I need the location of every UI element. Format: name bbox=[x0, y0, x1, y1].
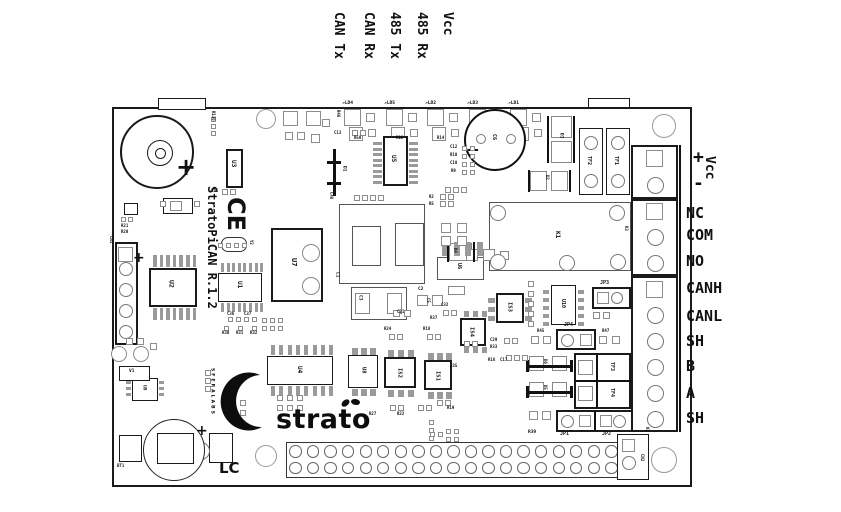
gpio-pin bbox=[360, 462, 372, 474]
ic-pin bbox=[388, 350, 394, 357]
pad-hole bbox=[133, 346, 149, 362]
ic-pin bbox=[153, 308, 157, 320]
smd-pad bbox=[118, 247, 133, 262]
pad-hole bbox=[584, 174, 598, 188]
mounting-hole bbox=[255, 445, 277, 467]
led-label-LD1: ↗LD1 bbox=[508, 102, 519, 107]
ic-pin bbox=[313, 386, 317, 396]
component-body bbox=[395, 223, 424, 266]
refdes-U6: U6 bbox=[456, 263, 461, 269]
terminal-label-5-CANH: CANH bbox=[686, 281, 722, 296]
ic-pin bbox=[321, 386, 325, 396]
silk-line bbox=[327, 182, 341, 185]
smd-pad bbox=[390, 405, 396, 411]
cn1-pin bbox=[119, 304, 133, 318]
refdes-U8: U8 bbox=[360, 367, 366, 374]
silk-line bbox=[526, 360, 529, 372]
led-label-LD2: ↗LD2 bbox=[425, 102, 436, 107]
ic-pin bbox=[388, 390, 394, 397]
smd-pad bbox=[262, 326, 267, 331]
smd-pad bbox=[457, 236, 467, 246]
component-body bbox=[529, 356, 544, 371]
smd-pad bbox=[262, 318, 267, 323]
ic-pin bbox=[255, 303, 258, 312]
gpio-pin bbox=[465, 445, 477, 457]
smd-pad bbox=[441, 223, 451, 233]
smd-pad bbox=[236, 317, 241, 322]
silk-line bbox=[527, 391, 573, 394]
refdes-C5: C5 bbox=[426, 298, 430, 303]
smd-pad bbox=[126, 338, 133, 345]
refdes-JP2: JP2 bbox=[602, 432, 611, 437]
relay-pin bbox=[609, 205, 625, 221]
smd-pad bbox=[454, 429, 459, 434]
smd-pad bbox=[580, 334, 592, 346]
board-name: StratoPiCAN R.1.2 bbox=[206, 186, 218, 309]
smd-pad bbox=[311, 134, 320, 143]
smd-pad bbox=[449, 113, 458, 122]
smd-pad bbox=[462, 146, 467, 151]
ic-pin bbox=[543, 306, 549, 310]
ic-pin bbox=[373, 170, 382, 173]
gpio-pin bbox=[412, 462, 424, 474]
ic-pin bbox=[477, 242, 483, 256]
refdes-BT1: BT1 bbox=[117, 464, 124, 468]
smd-pad bbox=[534, 129, 542, 137]
refdes-V1: V1 bbox=[129, 370, 134, 375]
gpio-pin bbox=[517, 445, 529, 457]
top-label-Vcc: Vcc bbox=[441, 12, 454, 35]
ic-pin bbox=[361, 389, 367, 396]
terminal-pin bbox=[647, 385, 664, 402]
led-label-LD5: ↗LD5 bbox=[384, 102, 395, 107]
smd-pad bbox=[322, 119, 330, 127]
pad-hole bbox=[561, 415, 574, 428]
refdes-IS3: IS3 bbox=[506, 302, 512, 312]
refdes-U9: U9 bbox=[141, 385, 146, 390]
ic-pin bbox=[153, 255, 157, 267]
ic-pin bbox=[482, 311, 487, 317]
refdes-C2: C2 bbox=[418, 288, 423, 293]
terminal-pin bbox=[647, 307, 664, 324]
silk-line bbox=[569, 170, 571, 192]
ic-pin bbox=[370, 389, 376, 396]
smd-pad bbox=[211, 124, 216, 129]
smd-pad bbox=[430, 432, 435, 437]
battery-plus: + bbox=[196, 424, 208, 438]
brand-text: SFERALABS bbox=[209, 368, 214, 416]
gpio-pin bbox=[412, 445, 424, 457]
terminal-label-7-SH: SH bbox=[686, 334, 704, 349]
ic-pin bbox=[179, 308, 183, 320]
silk-line bbox=[570, 386, 573, 398]
refdes-U4: U4 bbox=[296, 366, 302, 373]
cn1-plus: + bbox=[133, 251, 145, 265]
refdes-U5: U5 bbox=[390, 155, 396, 162]
ic-pin bbox=[166, 255, 170, 267]
smd-pad bbox=[418, 405, 424, 411]
gpio-pin bbox=[482, 445, 494, 457]
relay-pin bbox=[559, 255, 575, 271]
gpio-pin bbox=[605, 445, 617, 457]
refdes-C32: C32 bbox=[441, 303, 448, 307]
component-body bbox=[226, 149, 243, 188]
ic-pin bbox=[578, 290, 584, 294]
component-body bbox=[352, 226, 381, 266]
relay-pin bbox=[490, 205, 506, 221]
refdes-D2: D2 bbox=[545, 175, 549, 180]
smd-pad bbox=[612, 336, 620, 344]
refdes-C13: C13 bbox=[334, 131, 341, 135]
smd-pad bbox=[270, 326, 275, 331]
ic-pin bbox=[408, 350, 414, 357]
smd-pad bbox=[370, 195, 376, 201]
refdes-L1: L1 bbox=[334, 272, 339, 277]
silkscreen-label-R50: R50 bbox=[354, 136, 361, 140]
gpio-pin bbox=[553, 462, 565, 474]
smd-pad bbox=[457, 223, 467, 233]
ic-pin bbox=[482, 347, 487, 353]
led-label-LD3: ↗LD3 bbox=[467, 102, 478, 107]
ic-pin bbox=[160, 255, 164, 267]
pad-hole bbox=[611, 174, 625, 188]
smd-pad bbox=[451, 129, 459, 137]
ic-pin bbox=[409, 153, 418, 156]
refdes-D5: D5 bbox=[543, 385, 547, 390]
pad-hole bbox=[476, 134, 486, 144]
smd-pad bbox=[542, 411, 551, 420]
smd-pad bbox=[278, 318, 283, 323]
ic-pin bbox=[249, 263, 252, 272]
refdes-R30: R30 bbox=[222, 331, 229, 335]
ic-pin bbox=[409, 181, 418, 184]
ic-pin bbox=[126, 387, 131, 390]
led-pad bbox=[427, 109, 444, 126]
refdes-R20: R20 bbox=[121, 230, 128, 234]
ic-pin bbox=[255, 263, 258, 272]
pad-hole bbox=[302, 277, 320, 295]
gpio-pin bbox=[482, 462, 494, 474]
smd-pad bbox=[234, 243, 239, 248]
terminal-pin bbox=[647, 333, 664, 350]
terminal-pin bbox=[647, 177, 664, 194]
smd-pad bbox=[461, 187, 467, 193]
silk-line bbox=[594, 411, 596, 431]
ic-pin bbox=[543, 322, 549, 326]
silk-line bbox=[333, 149, 336, 196]
ic-pin bbox=[370, 348, 376, 355]
gpio-pin bbox=[360, 445, 372, 457]
ic-pin bbox=[271, 345, 275, 355]
smd-pad bbox=[512, 338, 518, 344]
terminal-pin-square bbox=[646, 150, 663, 167]
smd-pad bbox=[528, 301, 534, 307]
gpio-header bbox=[286, 442, 639, 478]
ic-pin bbox=[437, 353, 443, 360]
refdes-D4: D4 bbox=[453, 248, 457, 253]
smd-pad bbox=[531, 336, 539, 344]
pad-hole bbox=[622, 456, 636, 470]
smd-pad bbox=[228, 317, 233, 322]
refdes-R33: R33 bbox=[490, 345, 497, 349]
smd-pad bbox=[470, 154, 475, 159]
smd-pad bbox=[368, 129, 376, 137]
refdes-U10: U10 bbox=[560, 299, 565, 308]
refdes-R32: R32 bbox=[250, 331, 257, 335]
top-label-CAN-Tx: CAN Tx bbox=[332, 12, 345, 59]
refdes-R24: R24 bbox=[384, 327, 391, 331]
smd-pad bbox=[160, 201, 166, 207]
refdes-D6: D6 bbox=[543, 359, 547, 364]
gpio-pin bbox=[430, 445, 442, 457]
pad-hole bbox=[302, 244, 320, 262]
smd-pad bbox=[426, 405, 432, 411]
mounting-hole bbox=[256, 109, 276, 129]
smd-pad bbox=[366, 113, 375, 122]
silk-line bbox=[570, 360, 573, 372]
component-body bbox=[119, 366, 150, 381]
refdes-R9: R9 bbox=[451, 169, 456, 173]
ic-pin bbox=[398, 390, 404, 397]
ic-pin bbox=[243, 263, 246, 272]
refdes-C10: C10 bbox=[450, 161, 457, 165]
refdes-TF4: TF4 bbox=[609, 388, 614, 397]
ic-pin bbox=[409, 164, 418, 167]
smd-pad bbox=[287, 395, 293, 401]
ic-pin bbox=[160, 308, 164, 320]
smd-pad bbox=[529, 411, 538, 420]
battery-code: LC bbox=[219, 461, 240, 476]
ic-pin bbox=[232, 263, 235, 272]
ic-pin bbox=[313, 345, 317, 355]
ic-pin bbox=[409, 175, 418, 178]
ic-pin bbox=[578, 314, 584, 318]
smd-pad bbox=[446, 429, 451, 434]
refdes-JP1: JP1 bbox=[560, 432, 569, 437]
component-body bbox=[578, 360, 593, 375]
smd-pad bbox=[543, 336, 551, 344]
smd-pad bbox=[277, 395, 283, 401]
component-body bbox=[578, 386, 593, 401]
terminal-label-3-COM: COM bbox=[686, 228, 713, 243]
refdes-R22: R22 bbox=[397, 412, 404, 416]
cn1-pin bbox=[119, 262, 133, 276]
silk-line bbox=[573, 116, 575, 163]
smd-pad bbox=[230, 189, 236, 195]
ic-pin bbox=[260, 303, 263, 312]
pad-hole bbox=[613, 415, 626, 428]
ic-pin bbox=[126, 393, 131, 396]
refdes-D1: D1 bbox=[341, 166, 346, 171]
ic-pin bbox=[398, 350, 404, 357]
smd-pad bbox=[532, 113, 541, 122]
smd-pad bbox=[404, 310, 411, 317]
logo-wordmark: strato bbox=[276, 406, 371, 433]
terminal-label-10-SH: SH bbox=[686, 411, 704, 426]
smd-pad bbox=[448, 201, 454, 207]
refdes-R16: R16 bbox=[488, 358, 495, 362]
ic-pin bbox=[488, 316, 495, 321]
silk-line bbox=[679, 145, 681, 432]
component-body bbox=[170, 201, 182, 211]
smd-pad bbox=[362, 195, 368, 201]
ic-pin bbox=[352, 348, 358, 355]
refdes-U3: U3 bbox=[230, 160, 236, 167]
ic-pin bbox=[543, 290, 549, 294]
ic-pin bbox=[126, 381, 131, 384]
ic-pin bbox=[288, 345, 292, 355]
smd-pad bbox=[597, 292, 609, 304]
ic-pin bbox=[373, 175, 382, 178]
component-body bbox=[529, 382, 544, 397]
edge-cutout-right bbox=[588, 98, 630, 108]
smd-pad bbox=[440, 194, 446, 200]
ic-pin bbox=[193, 255, 197, 267]
refdes-JP3: JP3 bbox=[600, 281, 609, 286]
pad-hole bbox=[584, 136, 598, 150]
refdes-C40: C40 bbox=[329, 192, 333, 199]
gpio-pin bbox=[553, 445, 565, 457]
refdes-IS4: IS4 bbox=[468, 327, 474, 337]
refdes-TF1: TF1 bbox=[613, 156, 618, 165]
ic-pin bbox=[408, 390, 414, 397]
smd-pad bbox=[462, 162, 467, 167]
ic-pin bbox=[373, 181, 382, 184]
relay-pin bbox=[490, 254, 506, 270]
component-body bbox=[551, 171, 568, 191]
gpio-pin bbox=[605, 462, 617, 474]
pad-hole bbox=[611, 292, 623, 304]
refdes-R45: R45 bbox=[537, 329, 544, 333]
smd-pad bbox=[285, 132, 293, 140]
component-body bbox=[124, 203, 138, 215]
terminal-label-9-A: A bbox=[686, 386, 695, 401]
pcb-diagram: CAN TxCAN Rx485 Tx485 RxVcc+-NCCOMNOCANH… bbox=[0, 0, 841, 512]
ic-pin bbox=[179, 255, 183, 267]
ic-pin bbox=[464, 347, 469, 353]
ic-pin bbox=[221, 263, 224, 272]
gpio-pin bbox=[517, 462, 529, 474]
smd-pad bbox=[226, 243, 231, 248]
component-body bbox=[552, 356, 567, 371]
refdes-C29: C29 bbox=[490, 338, 497, 342]
pad-hole bbox=[561, 334, 574, 347]
terminal-pin bbox=[647, 255, 664, 272]
refdes-R37: R37 bbox=[430, 316, 437, 320]
pad-hole bbox=[611, 136, 625, 150]
component-body bbox=[551, 141, 572, 163]
ic-pin bbox=[428, 392, 434, 399]
smd-pad bbox=[252, 317, 257, 322]
component-body bbox=[119, 435, 142, 462]
buzzer-plus: + bbox=[176, 155, 196, 179]
refdes-TF3: TF3 bbox=[609, 362, 614, 371]
gpio-pin bbox=[535, 445, 547, 457]
smd-pad bbox=[504, 338, 510, 344]
refdes-R39: R39 bbox=[528, 431, 536, 436]
led-label-LD4: ↗LD4 bbox=[342, 102, 353, 107]
silkscreen-label-R12: R12 bbox=[396, 136, 403, 140]
gpio-pin bbox=[447, 445, 459, 457]
ic-pin bbox=[304, 386, 308, 396]
ce-mark: CE bbox=[224, 197, 248, 231]
refdes-R19: R19 bbox=[447, 406, 454, 410]
smd-pad bbox=[622, 439, 635, 452]
mounting-hole bbox=[651, 447, 677, 473]
refdes-C17: C17 bbox=[500, 358, 507, 362]
smd-pad bbox=[528, 291, 534, 297]
refdes-R5: R5 bbox=[429, 202, 434, 206]
smd-pad bbox=[514, 355, 520, 361]
ic-pin bbox=[186, 255, 190, 267]
smd-pad bbox=[242, 243, 247, 248]
smd-pad bbox=[429, 420, 434, 425]
refdes-R130: R130 bbox=[211, 111, 215, 121]
smd-pad bbox=[297, 132, 305, 140]
smd-pad bbox=[137, 338, 144, 345]
refdes-CN2: CN2 bbox=[640, 454, 644, 461]
ic-pin bbox=[238, 263, 241, 272]
ic-pin bbox=[446, 392, 452, 399]
ic-pin bbox=[227, 263, 230, 272]
smd-pad bbox=[454, 437, 459, 442]
ic-pin bbox=[409, 148, 418, 151]
refdes-R31: R31 bbox=[236, 331, 243, 335]
ic-pin bbox=[260, 263, 263, 272]
gpio-pin bbox=[342, 445, 354, 457]
ic-pin bbox=[543, 314, 549, 318]
gpio-pin bbox=[377, 445, 389, 457]
smd-pad bbox=[278, 326, 283, 331]
refdes-TF2: TF2 bbox=[586, 156, 591, 165]
smd-pad bbox=[354, 195, 360, 201]
ic-pin bbox=[296, 345, 300, 355]
ic-pin bbox=[329, 386, 333, 396]
top-label-CAN-Rx: CAN Rx bbox=[362, 12, 375, 59]
smd-pad bbox=[528, 321, 534, 327]
ic-pin bbox=[543, 298, 549, 302]
silk-line bbox=[574, 380, 631, 382]
ic-pin bbox=[578, 306, 584, 310]
terminal-pin bbox=[647, 359, 664, 376]
ic-pin bbox=[473, 311, 478, 317]
smd-pad bbox=[244, 317, 249, 322]
smd-pad bbox=[410, 129, 418, 137]
silk-line bbox=[526, 386, 529, 398]
terminal-block-K2 bbox=[631, 276, 678, 432]
ic-pin bbox=[221, 303, 224, 312]
ic-pin bbox=[373, 159, 382, 162]
terminal-label-4-NO: NO bbox=[686, 254, 704, 269]
smd-pad bbox=[128, 217, 133, 222]
ic-pin bbox=[464, 311, 469, 317]
ic-pin bbox=[329, 345, 333, 355]
refdes-IS2: IS2 bbox=[396, 368, 402, 378]
ic-pin bbox=[409, 142, 418, 145]
smd-pad bbox=[600, 415, 612, 427]
gpio-pin bbox=[307, 445, 319, 457]
smd-pad bbox=[441, 236, 451, 246]
refdes-R2: R2 bbox=[429, 195, 434, 199]
vcc-side-label: Vcc bbox=[703, 156, 716, 179]
cn1-pin bbox=[119, 325, 133, 339]
ic-pin bbox=[473, 347, 478, 353]
smd-pad bbox=[593, 312, 600, 319]
smd-pad bbox=[440, 201, 446, 207]
silk-line bbox=[527, 365, 573, 368]
smd-pad bbox=[378, 195, 384, 201]
smd-pad bbox=[443, 310, 449, 316]
